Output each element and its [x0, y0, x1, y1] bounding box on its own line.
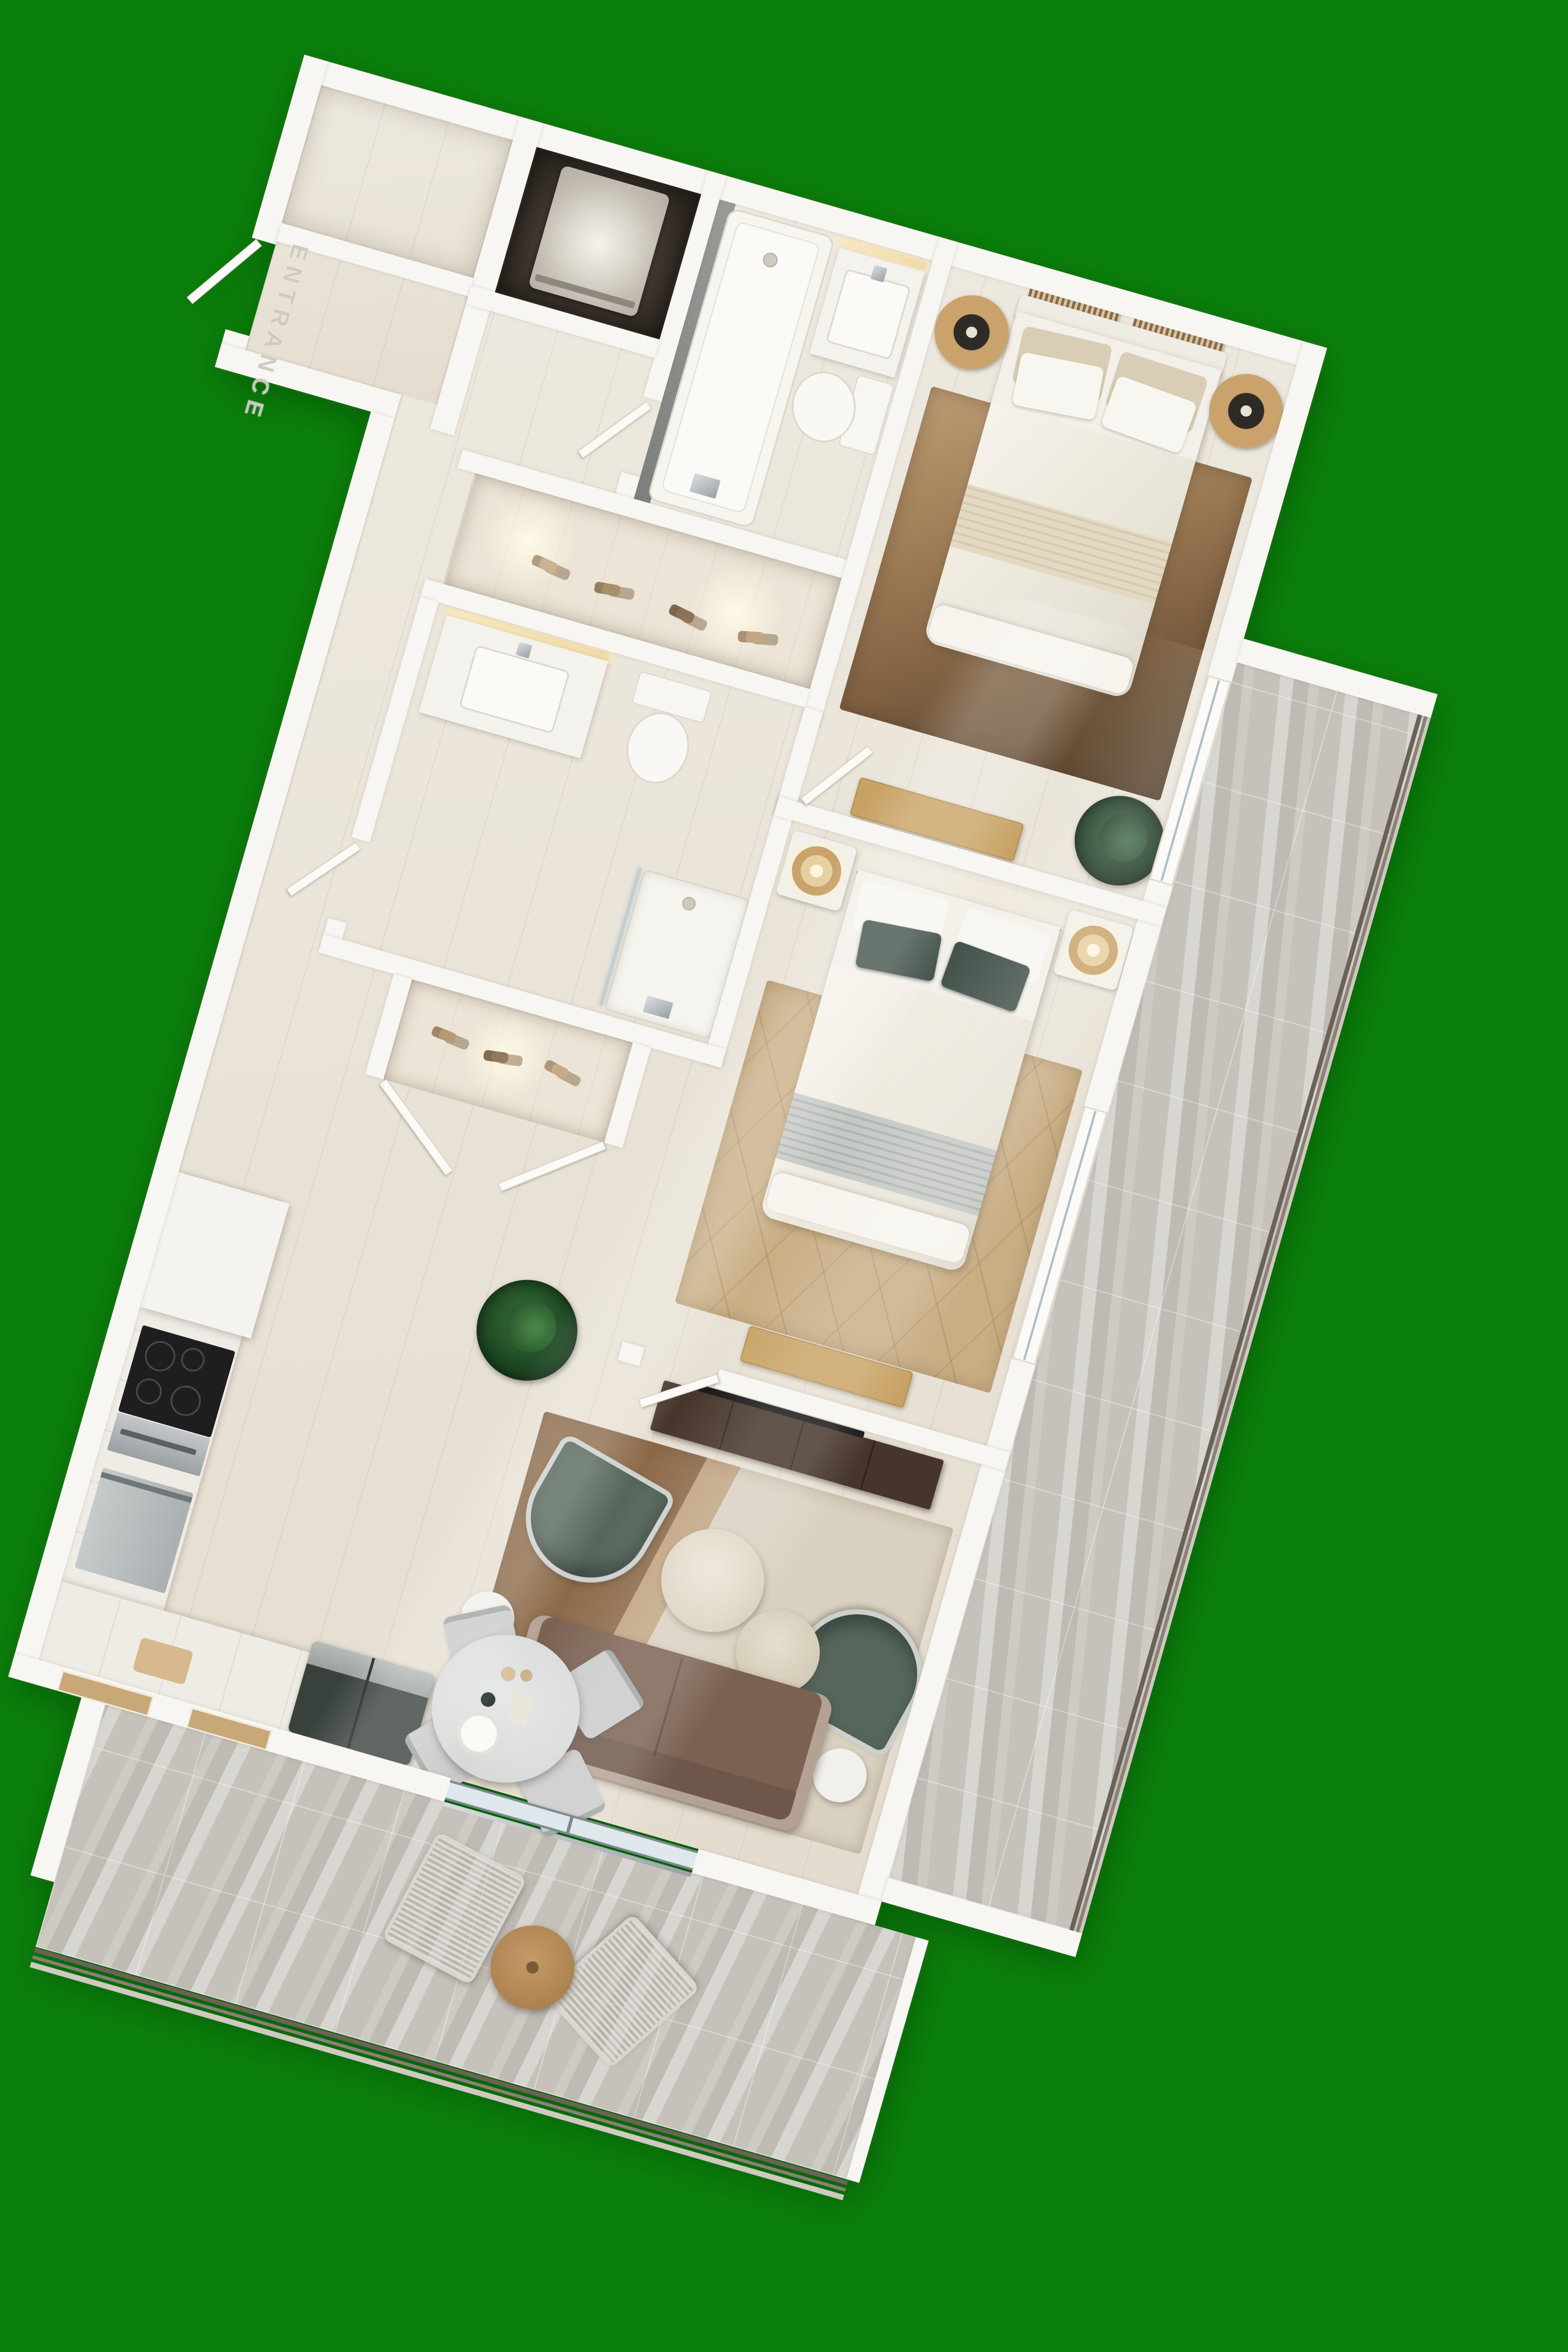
floor-plan: ENTRANCE [0, 22, 1530, 2255]
green-backdrop: ENTRANCE [0, 0, 1568, 2352]
entry-door [186, 239, 262, 304]
shoes-pair-4 [738, 631, 764, 643]
